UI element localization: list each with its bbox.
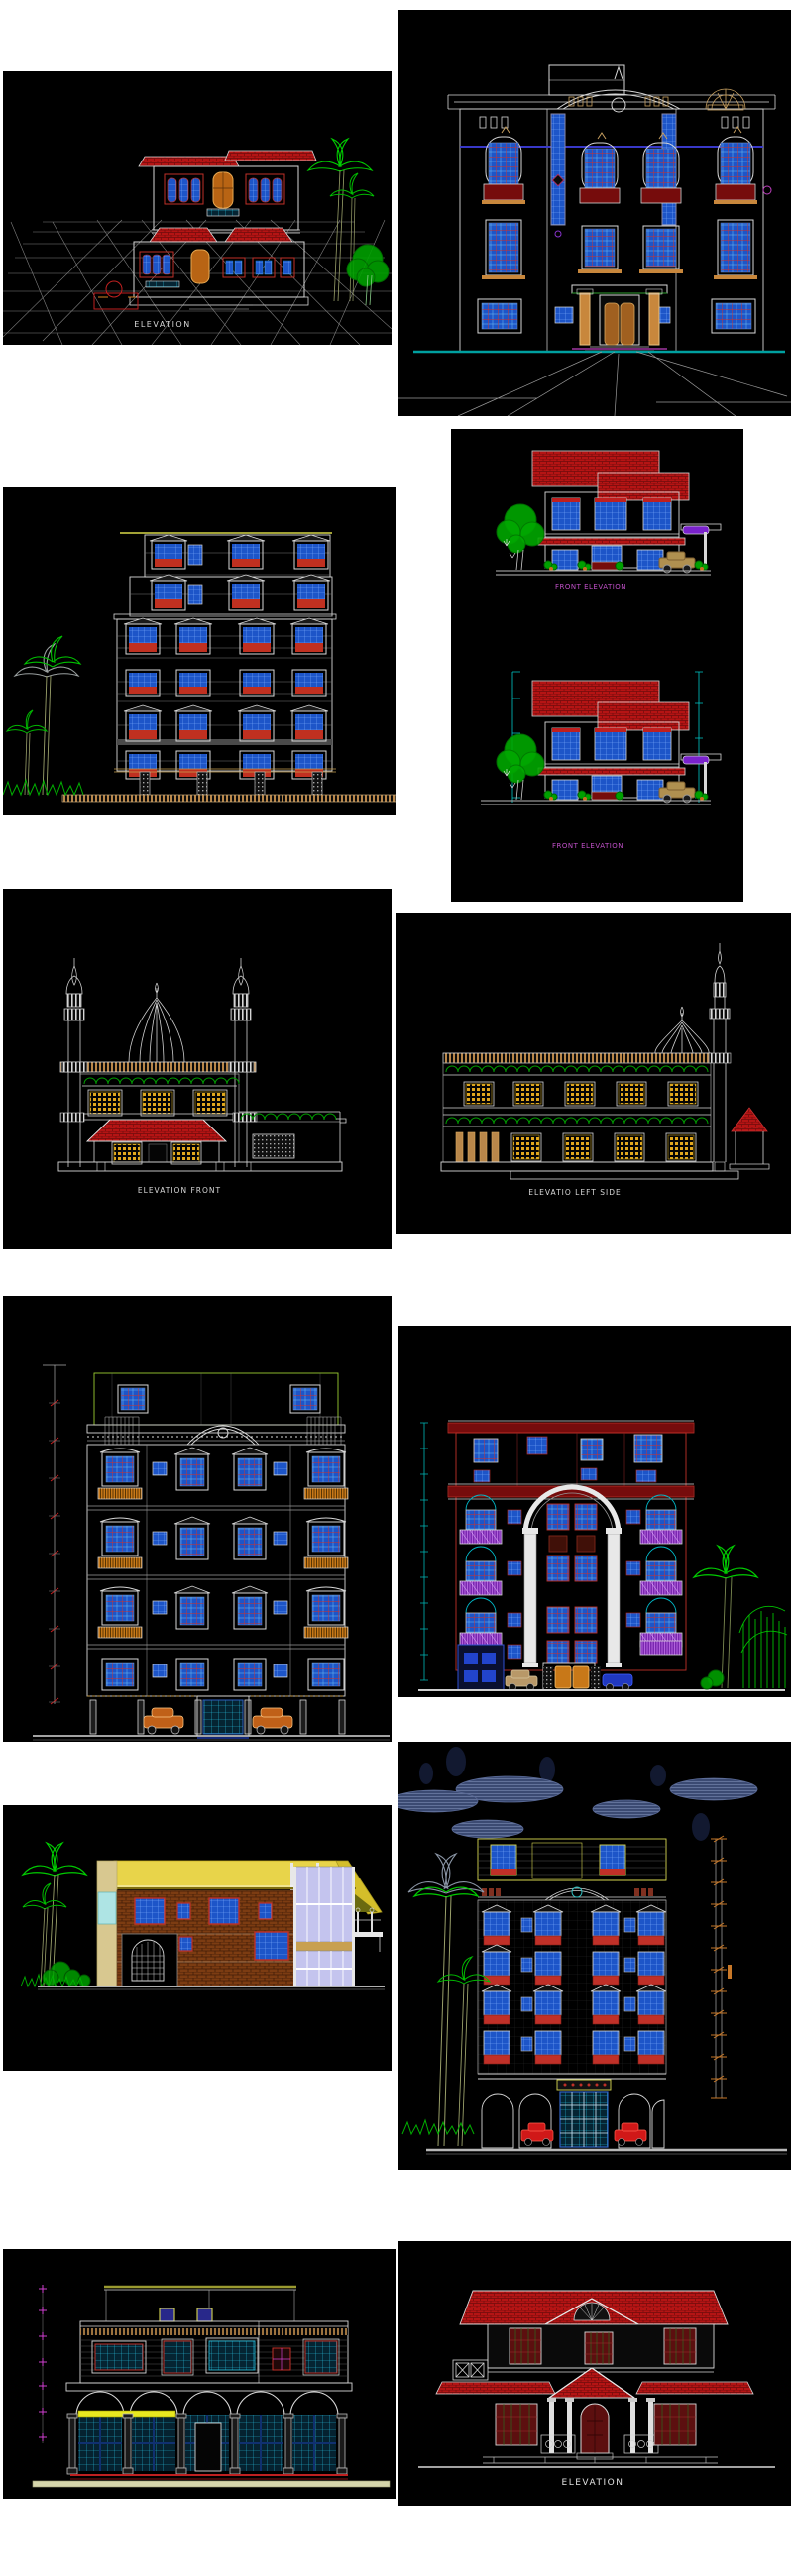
car-blue	[603, 1674, 632, 1691]
upper-windows	[92, 2338, 339, 2375]
drawing-caption: ELEVATIO LEFT SIDE	[528, 1188, 622, 1197]
dark-band	[117, 739, 332, 745]
main-cornice	[87, 1417, 345, 1445]
dimension-text-mark	[728, 1965, 732, 1979]
arcade	[67, 2392, 347, 2474]
windows-second-row	[482, 220, 757, 279]
central-arch	[522, 1487, 622, 1667]
classic-house-drawing: ELEVATION	[398, 2241, 791, 2506]
glass-curtain-wall	[293, 1867, 355, 1986]
top-frieze	[448, 1423, 694, 1433]
onion-dome	[129, 983, 184, 1062]
plinth	[58, 1162, 342, 1171]
upper-roof	[460, 2291, 728, 2324]
roof-vent	[197, 2308, 212, 2321]
dimension-line	[43, 1365, 66, 1704]
mosque-front-drawing: ELEVATION FRONT	[3, 889, 392, 1249]
upper-windows	[474, 1435, 662, 1482]
cornice-band	[443, 1053, 711, 1063]
panel-palace-front	[398, 10, 791, 416]
floor-band	[488, 2368, 714, 2372]
panel-mosque-front: ELEVATION FRONT	[3, 889, 392, 1249]
car-tan	[506, 1670, 537, 1691]
upper-window-left	[165, 174, 203, 204]
car-red-right	[615, 2123, 646, 2146]
modern-villa-drawing	[3, 1805, 392, 2071]
lattice-windows-upper	[464, 1082, 698, 1106]
side-balcony	[353, 1908, 383, 1952]
center-windows	[174, 1448, 268, 1629]
side-balcony-windows	[460, 1495, 682, 1655]
center-bay-windows	[547, 1504, 597, 1663]
house-front-top	[496, 451, 721, 575]
glazed-entrance	[203, 1700, 243, 1734]
glazed-pilaster-left	[551, 114, 565, 225]
gallery: ELEVATION	[0, 0, 793, 2576]
scallop-band-1	[446, 1066, 708, 1072]
apartment-block-drawing	[3, 487, 396, 815]
fourth-floor-windows	[102, 1659, 344, 1690]
arcade	[478, 2074, 666, 2148]
plinth	[441, 1162, 738, 1179]
scallop-band	[84, 1078, 239, 1084]
floor-band	[80, 1114, 239, 1120]
porch	[541, 2398, 658, 2459]
drawing-caption: ELEVATION FRONT	[138, 1186, 221, 1195]
panel-night-apartment	[398, 1742, 791, 2170]
palm-trees	[21, 1843, 90, 1986]
colonnade	[456, 1132, 499, 1162]
floor-band	[443, 1108, 711, 1115]
plinth	[483, 2457, 718, 2463]
lattice-windows-lower	[511, 1133, 696, 1161]
scallop-band-2	[446, 1118, 708, 1124]
left-balcony	[453, 2360, 488, 2380]
wing-vents	[480, 117, 749, 128]
car-left	[144, 1708, 183, 1734]
panel-ornate-apartment	[3, 1296, 392, 1742]
panel-villa-perspective: ELEVATION	[3, 71, 392, 345]
villa-house	[130, 151, 316, 309]
panel-modern-villa	[3, 1805, 392, 2071]
palm-trees	[694, 1546, 787, 1689]
entrance-door	[195, 2423, 221, 2471]
car	[659, 552, 695, 573]
dimension-column	[711, 1836, 732, 2098]
top-floor	[478, 1839, 666, 1880]
panel-commercial-arcade	[3, 2249, 396, 2499]
tree	[497, 504, 544, 570]
dimension-right	[695, 672, 703, 803]
drawing-caption: ELEVATION	[134, 320, 190, 329]
panel-two-houses: FRONT ELEVATION	[451, 429, 743, 902]
house-front-bottom	[481, 672, 721, 805]
ornate-apartment-drawing	[3, 1296, 392, 1742]
leafy-tree	[739, 1606, 787, 1688]
arched-windows-upper	[482, 127, 757, 204]
upper-floor	[80, 2321, 348, 2383]
commercial-arcade-drawing	[3, 2249, 396, 2499]
panel-classic-house: ELEVATION	[398, 2241, 791, 2506]
mosque-side-drawing: ELEVATIO LEFT SIDE	[396, 913, 791, 1234]
dimension-line	[420, 1423, 428, 1680]
mid-slab	[66, 2383, 352, 2391]
dimension-line	[39, 2285, 47, 2443]
second-floor-windows	[510, 2328, 696, 2364]
small-windows	[153, 1462, 287, 1677]
upper-window-right	[246, 174, 284, 204]
night-apartment-drawing	[398, 1742, 791, 2170]
foreground-perspective	[398, 352, 791, 416]
villa-perspective-drawing: ELEVATION	[3, 71, 392, 345]
lattice-windows-lower	[112, 1142, 201, 1164]
entrance	[572, 285, 667, 351]
panel-apartment-block	[3, 487, 396, 815]
ground-floor	[90, 1696, 345, 1736]
porch-roof	[87, 1120, 226, 1141]
palace-front-drawing	[398, 10, 791, 416]
panel-mosque-side: ELEVATIO LEFT SIDE	[396, 913, 791, 1234]
palm-trees	[3, 636, 83, 795]
entry-door	[191, 250, 209, 283]
red-cone-roof	[730, 1108, 769, 1169]
roof-vent	[160, 2308, 174, 2321]
drawing-caption: ELEVATION	[562, 2478, 624, 2488]
car-red-left	[521, 2123, 553, 2146]
garage	[122, 1934, 177, 1986]
clouds	[398, 1747, 757, 1841]
lattice-windows-upper	[88, 1090, 227, 1116]
onion-dome	[655, 1007, 709, 1053]
palm-trees	[402, 1854, 490, 2146]
ground-strip	[62, 795, 396, 802]
wing-windows	[98, 1449, 348, 1638]
panel-arched-apartment	[398, 1326, 791, 1697]
minaret	[710, 943, 730, 1162]
ground-floor	[458, 1645, 632, 1691]
cornice-band	[60, 1062, 256, 1072]
roof	[104, 2287, 296, 2321]
balcony	[207, 209, 239, 216]
ground-band	[33, 2481, 390, 2487]
two-houses-drawing: FRONT ELEVATION	[451, 429, 743, 902]
arched-apartment-drawing	[398, 1326, 791, 1697]
magenta-ornament	[763, 186, 771, 194]
drawing-caption: FRONT ELEVATION	[555, 583, 626, 590]
cyan-accent	[98, 1892, 116, 1924]
car-right	[253, 1708, 292, 1734]
drawing-caption: FRONT ELEVATION	[552, 842, 623, 850]
cornice	[478, 1880, 666, 1900]
